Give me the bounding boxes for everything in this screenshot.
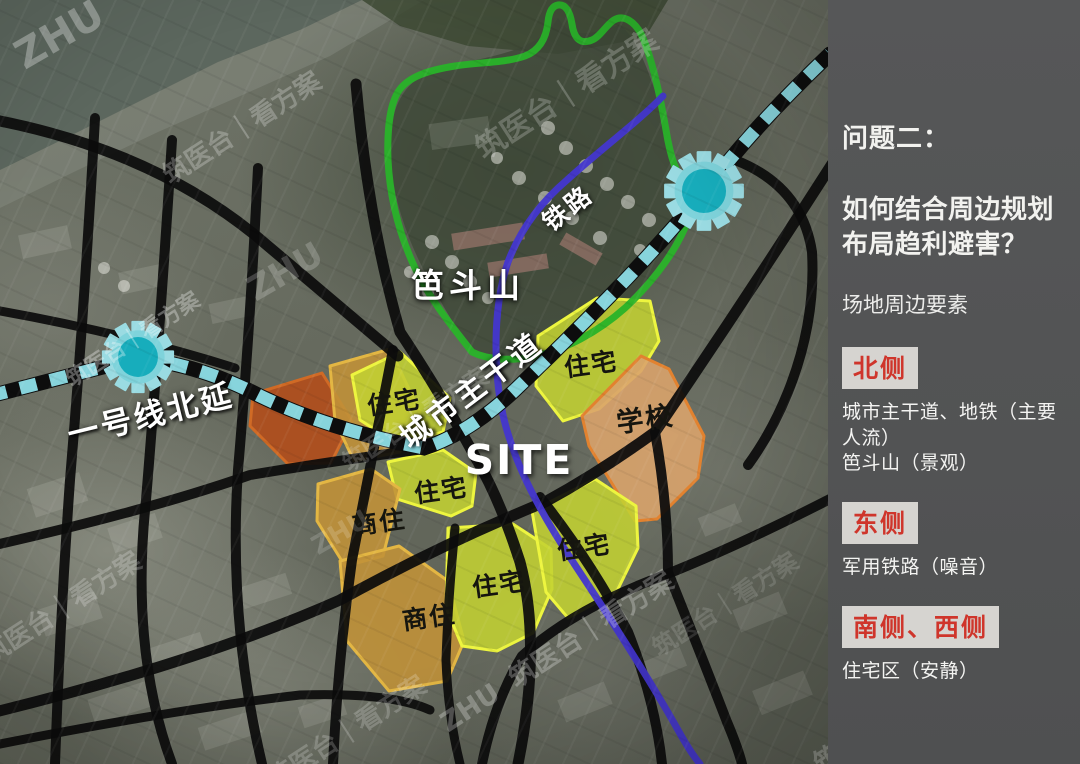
analysis-panel: 问题二： 如何结合周边规划 布局趋利避害？ 场地周边要素 北侧 城市主干道、地铁… (828, 0, 1080, 764)
north-desc-line2: 笆斗山（景观） (842, 451, 1068, 477)
slide: 笆斗山 铁路 城市主干道 一号线北延 SITE 住宅 住宅 住宅 住宅 住宅 商… (0, 0, 1080, 764)
south-west-side-tag: 南侧、西侧 (842, 606, 999, 648)
site-analysis-map: 笆斗山 铁路 城市主干道 一号线北延 SITE 住宅 住宅 住宅 住宅 住宅 商… (0, 0, 828, 764)
zone-residential-c (388, 450, 476, 516)
section-north: 北侧 城市主干道、地铁（主要人流） 笆斗山（景观） (842, 347, 1068, 477)
east-side-tag: 东侧 (842, 502, 918, 544)
east-side-desc: 军用铁路（噪音） (842, 555, 1068, 581)
south-west-side-desc: 住宅区（安静） (842, 659, 1068, 685)
east-desc-line1: 军用铁路（噪音） (842, 555, 1068, 581)
north-side-desc: 城市主干道、地铁（主要人流） 笆斗山（景观） (842, 400, 1068, 477)
section-south-west: 南侧、西侧 住宅区（安静） (842, 606, 1068, 685)
panel-subtitle: 场地周边要素 (842, 289, 1068, 319)
question-title: 如何结合周边规划 布局趋利避害？ (842, 193, 1068, 263)
south-west-desc-line1: 住宅区（安静） (842, 659, 1068, 685)
question-title-line2: 布局趋利避害？ (842, 228, 1068, 263)
map-graphics (0, 0, 828, 764)
north-desc-line1: 城市主干道、地铁（主要人流） (842, 400, 1068, 451)
question-kicker: 问题二： (842, 118, 1068, 155)
question-title-line1: 如何结合周边规划 (842, 193, 1068, 228)
north-side-tag: 北侧 (842, 347, 918, 389)
section-east: 东侧 军用铁路（噪音） (842, 502, 1068, 581)
side-factor-sections: 北侧 城市主干道、地铁（主要人流） 笆斗山（景观） 东侧 军用铁路（噪音） 南侧… (842, 347, 1068, 684)
